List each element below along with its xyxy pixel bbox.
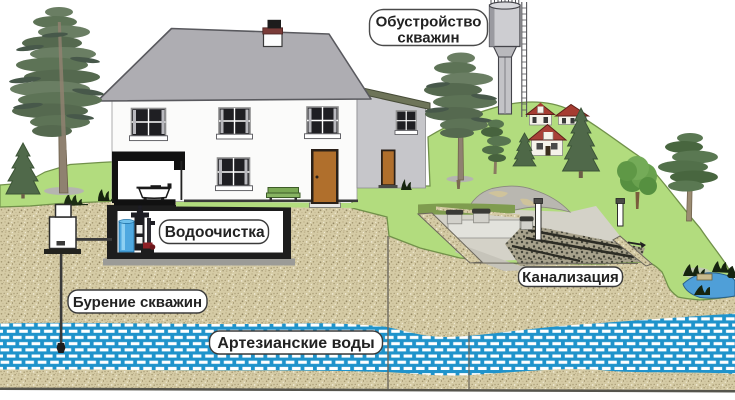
svg-text:Артезианские воды: Артезианские воды <box>217 335 374 352</box>
svg-text:Водоочистка: Водоочистка <box>165 224 265 241</box>
svg-text:Канализация: Канализация <box>522 269 619 286</box>
svg-text:Обустройство: Обустройство <box>376 14 482 31</box>
svg-text:Бурение скважин: Бурение скважин <box>73 294 202 311</box>
svg-text:скважин: скважин <box>397 30 459 47</box>
